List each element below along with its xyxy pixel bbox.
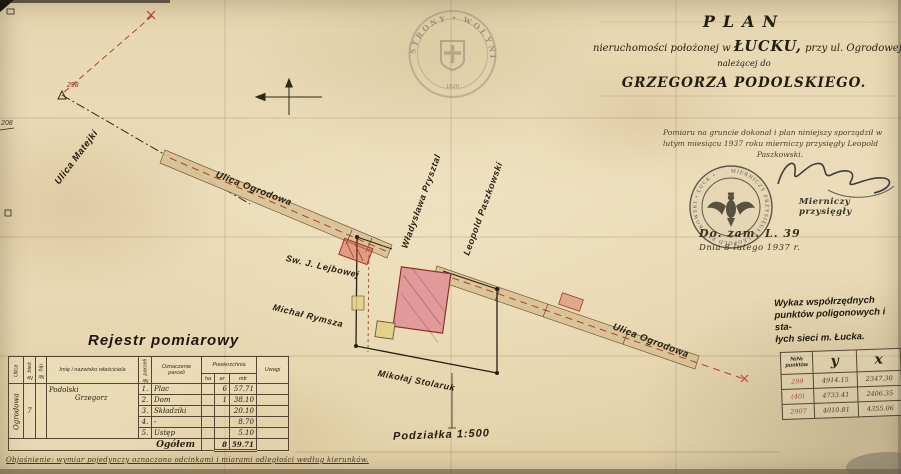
owner-name-title: GRZEGORZA PODOLSKIEGO.: [593, 75, 895, 91]
building-footprints: [339, 238, 584, 343]
survey-point-298: 298: [67, 82, 79, 89]
empty-cell: [36, 384, 47, 439]
title-block: PLAN nieruchomości położonej w ŁUCKU, pr…: [593, 12, 895, 91]
street-name: Ogrodowa: [9, 384, 24, 439]
area-ha: [202, 395, 215, 406]
house-number: 7: [24, 384, 36, 439]
total-ha: [202, 439, 215, 451]
register-row: Ogrodowa 7 Podolski Grzegorz 1. Plac 6 5…: [9, 384, 289, 395]
uwagi-cell: [256, 395, 288, 406]
title-location-pre: nieruchomości położonej w: [593, 43, 731, 54]
col-ulica: Ulica: [9, 357, 24, 384]
point-no: 299: [781, 373, 814, 389]
title-belonging-line: należącej do: [593, 59, 895, 69]
col-uwagi: Uwagi: [256, 357, 288, 384]
area-ha: [202, 384, 215, 395]
point-no: (40): [782, 388, 815, 404]
title-city: ŁUCKU,: [734, 38, 802, 55]
parcel-name: -: [152, 417, 202, 428]
area-mtr: 8.70: [230, 417, 257, 428]
embossed-watermark-seal-icon: STRONY • WOŁYNIE 1920: [405, 8, 500, 100]
col-nr-hip: № hip.: [36, 357, 47, 384]
parcel-no: 2.: [139, 395, 152, 406]
area-mtr: 5.10: [230, 428, 257, 439]
title-location-line: nieruchomości położonej w ŁUCKU, przy ul…: [593, 38, 895, 55]
coord-y: 4914.15: [813, 371, 857, 388]
coord-x: 2406.35: [858, 385, 901, 402]
register-total-row: Ogółem 8 59.71: [9, 439, 289, 451]
coordinates-list: Wykaz współrzędnych punktów poligonowych…: [774, 294, 901, 420]
col-mtr: mtr: [230, 374, 257, 384]
parcel-name: Składziki: [152, 406, 202, 417]
area-ha: [202, 428, 215, 439]
col-ar: ar: [215, 374, 230, 384]
parcel-name: Plac: [152, 384, 202, 395]
area-ar: [215, 406, 230, 417]
col-nr-biez: № bież.: [24, 357, 36, 384]
area-ha: [202, 417, 215, 428]
plan-title: PLAN: [593, 12, 895, 31]
coord-x: 4355.06: [858, 400, 901, 417]
owner-name: Podolski Grzegorz: [47, 384, 139, 439]
attestation-line: Pomiaru na gruncie dokonał i plan niniej…: [663, 127, 897, 138]
owner-second-line: Grzegorz: [75, 394, 136, 402]
point-no: 2907: [782, 403, 815, 419]
area-mtr: 20.10: [230, 406, 257, 417]
parcel-no: 4.: [139, 417, 152, 428]
col-oznaczenie: Oznaczenie parceli: [152, 357, 202, 384]
area-mtr: 38.10: [230, 395, 257, 406]
col-nr-parc: № parceli: [139, 357, 152, 384]
survey-point-208: 208: [1, 120, 13, 127]
parcel-no: 3.: [139, 406, 152, 417]
scanned-survey-plan: STRONY • WOŁYNIE 1920 PLAN nieruchomości…: [0, 0, 901, 474]
coord-y: 4733.41: [814, 386, 858, 403]
col-powierzchnia: Powierzchnia: [202, 357, 257, 374]
area-ar: 6: [215, 384, 230, 395]
coord-x: 2347.30: [857, 370, 901, 387]
main-house-footprint: [392, 267, 451, 343]
area-ar: [215, 428, 230, 439]
col-point-no: №№ punktów: [780, 351, 813, 374]
outbuilding-2: [352, 296, 364, 310]
parcel-no: 1.: [139, 384, 152, 395]
title-street: przy ul. Ogrodowej,: [805, 43, 901, 54]
case-date: Dnia 8 lutego 1937 r.: [699, 243, 801, 253]
margin-footnote: Objaśnienie: wymiar pojedynczy oznaczono…: [6, 456, 369, 464]
parcel-name: Ustęp: [152, 428, 202, 439]
measurement-register: Rejestr pomiarowy Ulica № bież. № hip. I…: [8, 332, 289, 452]
case-number: Do. zam. L. 39: [699, 227, 801, 240]
coordinates-table: №№ punktów y x 299 4914.15 2347.30 (40) …: [780, 347, 901, 419]
total-mtr: 59.71: [230, 439, 257, 451]
col-x: x: [856, 348, 901, 372]
case-reference: Do. zam. L. 39 Dnia 8 lutego 1937 r.: [699, 227, 801, 253]
owner-first-line: Podolski: [49, 386, 136, 394]
total-label: Ogółem: [9, 439, 202, 451]
signature-caption: Mierniczy przysięgły: [799, 197, 901, 217]
area-ha: [202, 406, 215, 417]
col-y: y: [812, 349, 857, 373]
hatched-building-lower-street: [559, 293, 584, 312]
uwagi-cell: [256, 417, 288, 428]
area-ar: 1: [215, 395, 230, 406]
col-owner: Imię i nazwisko właściciela: [47, 357, 139, 384]
outbuilding-1: [375, 321, 395, 339]
register-table: Ulica № bież. № hip. Imię i nazwisko wła…: [8, 356, 289, 452]
watermark-cross-icon: [444, 45, 461, 63]
area-mtr: 57.71: [230, 384, 257, 395]
uwagi-cell: [256, 428, 288, 439]
total-ar: 8: [215, 439, 230, 451]
coord-y: 4010.81: [814, 401, 858, 418]
coords-title: Wykaz współrzędnych punktów poligonowych…: [774, 294, 901, 346]
area-ar: [215, 417, 230, 428]
uwagi-cell: [256, 384, 288, 395]
north-arrow-icon: [256, 79, 322, 115]
watermark-year: 1920: [446, 84, 460, 90]
uwagi-cell: [256, 406, 288, 417]
uwagi-cell: [256, 439, 288, 451]
parcel-name: Dom: [152, 395, 202, 406]
parcel-no: 5.: [139, 428, 152, 439]
register-title: Rejestr pomiarowy: [88, 332, 289, 349]
col-ha: ha: [202, 374, 215, 384]
